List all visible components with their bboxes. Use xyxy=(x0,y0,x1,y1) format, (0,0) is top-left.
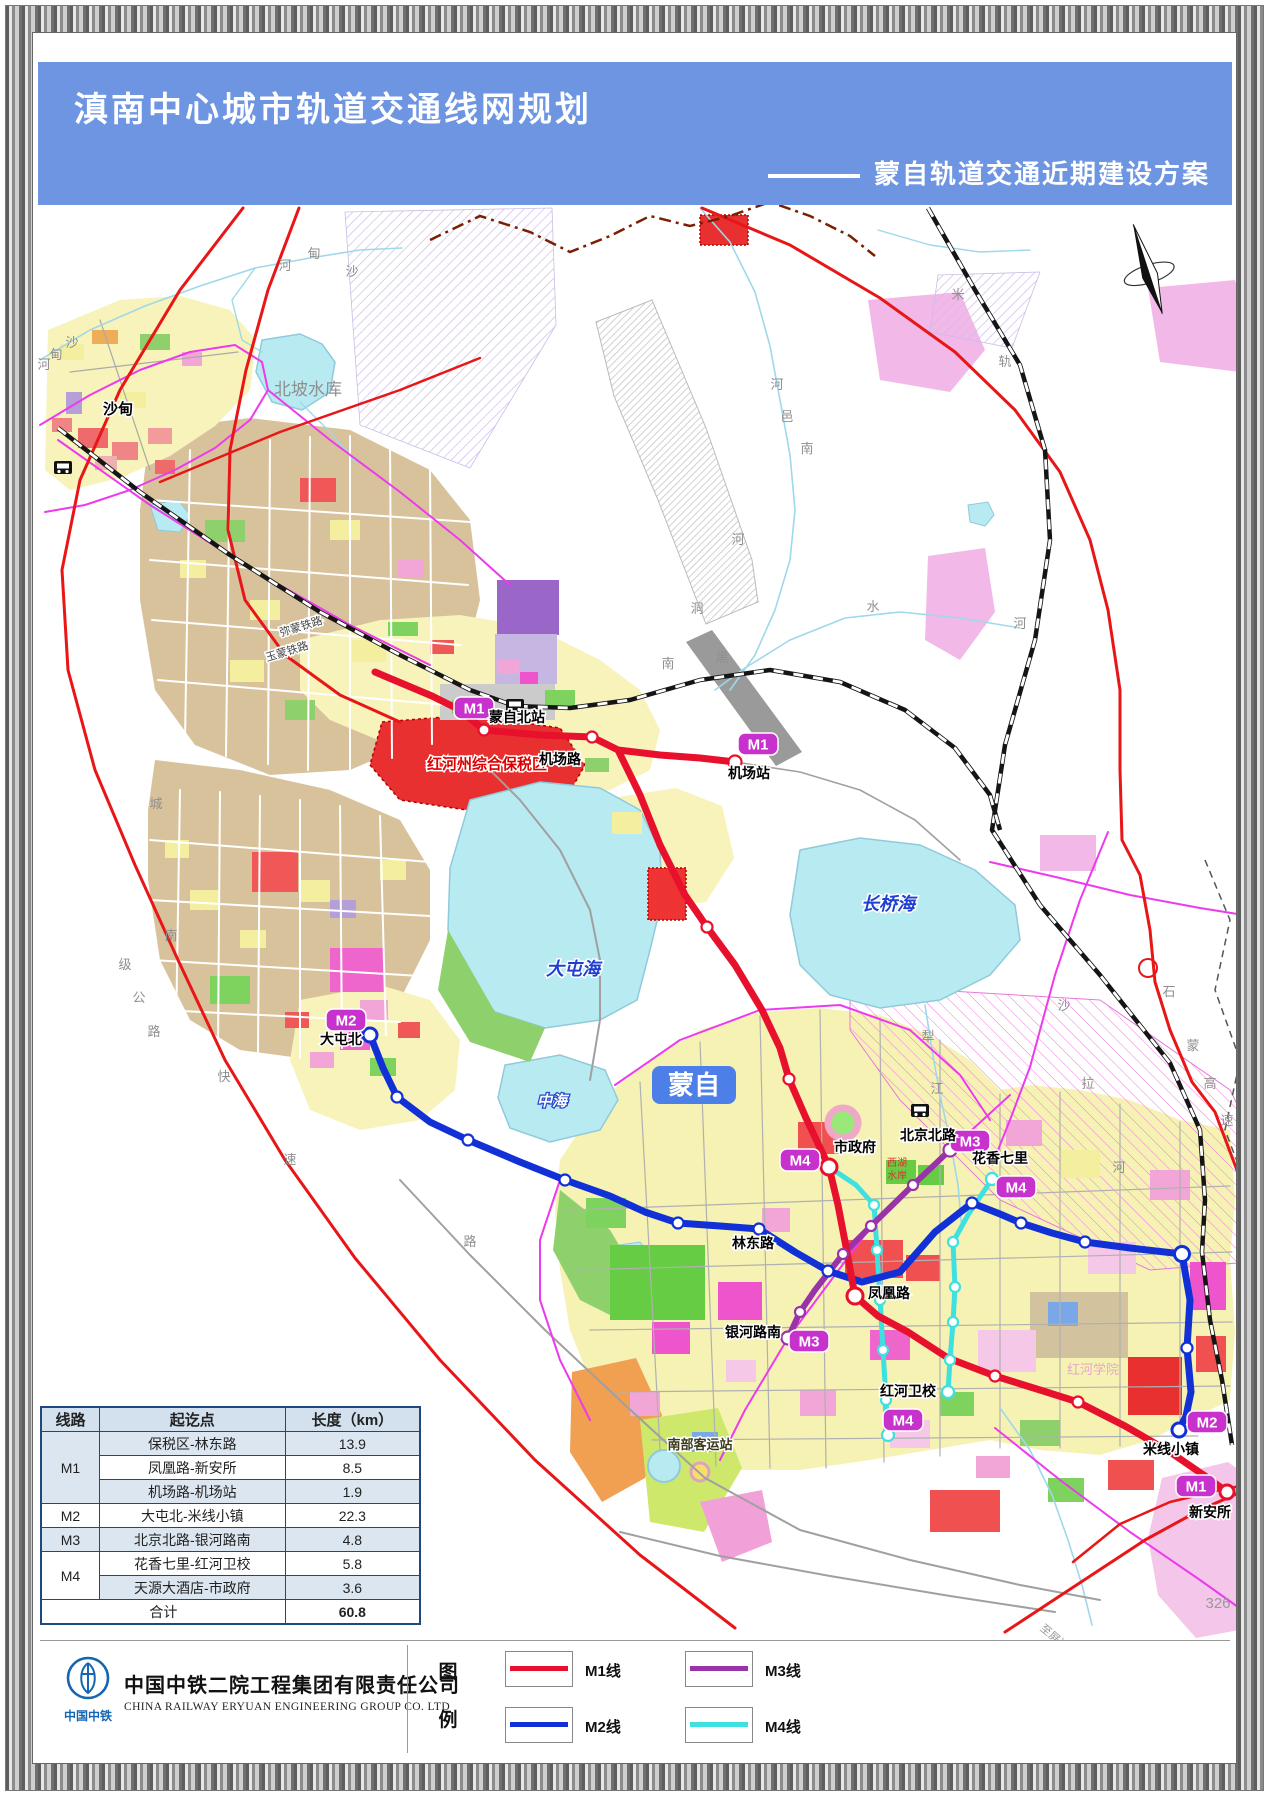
map-label: 黑 xyxy=(715,650,728,665)
map-label: 银河路南 xyxy=(725,1324,781,1340)
length-cell: 13.9 xyxy=(285,1432,420,1456)
planned-hatch-area-1 xyxy=(345,208,556,468)
legend-label-m3: M3线 xyxy=(765,1660,801,1681)
changqiaohai-lake xyxy=(790,838,1020,1008)
station-marker xyxy=(1172,1423,1186,1437)
map-label: 花香七里 xyxy=(972,1150,1028,1166)
legend-label-m2: M2线 xyxy=(585,1716,621,1737)
map-label: 蒙自北站 xyxy=(489,709,545,725)
station-marker xyxy=(1175,1247,1190,1262)
table-row: M4花香七里-红河卫校5.8 xyxy=(41,1552,420,1576)
city-name-box: 蒙自 xyxy=(652,1066,736,1104)
station-marker xyxy=(463,1135,474,1146)
station-marker xyxy=(673,1218,684,1229)
map-label: 红河卫校 xyxy=(880,1383,937,1399)
land-parcel xyxy=(520,672,538,684)
table-header: 线路 xyxy=(41,1407,99,1432)
station-marker xyxy=(587,732,598,743)
land-parcel xyxy=(205,520,245,542)
svg-text:M1: M1 xyxy=(1186,1479,1207,1496)
legend-swatch-m4 xyxy=(685,1707,753,1743)
map-label: 南部客运站 xyxy=(667,1437,732,1452)
map-label: 河 xyxy=(278,258,291,273)
title-banner: 滇南中心城市轨道交通线网规划 蒙自轨道交通近期建设方案 xyxy=(38,62,1232,205)
company-logo-caption: 中国中铁 xyxy=(60,1707,116,1724)
land-parcel xyxy=(66,392,82,414)
map-label: 河 xyxy=(1112,1160,1125,1175)
round-feature xyxy=(828,1108,858,1138)
land-parcel xyxy=(300,478,336,502)
map-label: 大屯北 xyxy=(320,1031,362,1047)
line-badge-m1: M1 xyxy=(738,733,778,755)
svg-text:M4: M4 xyxy=(893,1413,914,1430)
pond-ne xyxy=(968,502,994,526)
road-or-river xyxy=(620,1532,1055,1612)
land-parcel xyxy=(1006,1120,1042,1146)
map-label: 速 xyxy=(1220,1113,1233,1128)
segment-cell: 天源大酒店-市政府 xyxy=(99,1576,285,1600)
station-marker xyxy=(1016,1218,1027,1229)
map-label: 西湖 xyxy=(887,1157,907,1169)
station-marker xyxy=(1073,1397,1084,1408)
station-marker xyxy=(795,1307,805,1317)
map-label: 机场站 xyxy=(728,765,770,781)
station-marker xyxy=(869,1200,879,1210)
map-label: 326 xyxy=(1205,1595,1230,1612)
svg-text:M1: M1 xyxy=(464,701,485,718)
svg-text:M4: M4 xyxy=(790,1153,811,1170)
line-badge-m4: M4 xyxy=(996,1176,1036,1198)
land-parcel xyxy=(585,758,609,772)
pink-area-3 xyxy=(925,548,995,660)
road-or-river xyxy=(878,230,1030,252)
map-label: 水 xyxy=(866,599,879,614)
table-header: 起讫点 xyxy=(99,1407,285,1432)
table-row: M3北京北路-银河路南4.8 xyxy=(41,1528,420,1552)
station-marker xyxy=(560,1175,571,1186)
station-marker xyxy=(872,1245,882,1255)
line-id-cell: M1 xyxy=(41,1432,99,1504)
map-label: 红河学院 xyxy=(1067,1362,1119,1377)
map-label: 机场路 xyxy=(539,751,582,767)
land-parcel xyxy=(652,1322,690,1354)
page: M1M1M1M2M2M3M3M4M4M4沙甸北坡水库沙甸河沙甸河弥蒙铁路玉蒙铁路… xyxy=(0,0,1269,1796)
map-label: 南 xyxy=(164,928,177,943)
map-label: 林东路 xyxy=(732,1235,775,1251)
land-parcel xyxy=(497,660,519,674)
land-parcel xyxy=(762,1208,790,1232)
land-parcel xyxy=(240,930,266,948)
land-parcel xyxy=(545,690,575,706)
line-badge-m2: M2 xyxy=(1187,1411,1227,1433)
leisure-pink xyxy=(700,1490,772,1562)
map-label: 犁 xyxy=(921,1029,934,1044)
land-parcel xyxy=(230,660,264,682)
segment-cell: 凤凰路-新安所 xyxy=(99,1456,285,1480)
map-label: 南 xyxy=(800,441,813,456)
station-marker xyxy=(948,1237,958,1247)
land-parcel xyxy=(930,1490,1000,1532)
station-marker xyxy=(847,1288,863,1304)
land-parcel xyxy=(497,580,559,635)
line-badge-m1: M1 xyxy=(454,697,494,719)
legend-caption-top: 图 xyxy=(436,1657,460,1684)
station-marker xyxy=(838,1249,848,1259)
bus-station-icon xyxy=(911,1104,929,1117)
land-parcel xyxy=(870,1330,910,1360)
line-badge-m4: M4 xyxy=(780,1149,820,1171)
map-label: 洞 xyxy=(690,601,703,616)
map-label: 速 xyxy=(283,1152,296,1167)
line-id-cell: M4 xyxy=(41,1552,99,1600)
subtitle-dash xyxy=(768,174,860,178)
map-label: 路 xyxy=(147,1024,160,1039)
station-marker xyxy=(784,1074,795,1085)
segment-cell: 大屯北-米线小镇 xyxy=(99,1504,285,1528)
page-title: 滇南中心城市轨道交通线网规划 xyxy=(74,82,592,131)
land-parcel xyxy=(610,1245,705,1320)
map-label: 沙 xyxy=(1057,998,1070,1013)
map-label: 长桥海 xyxy=(861,894,918,914)
station-marker xyxy=(702,922,713,933)
station-marker xyxy=(823,1266,834,1277)
length-cell: 1.9 xyxy=(285,1480,420,1504)
land-parcel xyxy=(1020,1420,1060,1446)
train-station-icon xyxy=(54,461,72,474)
land-parcel xyxy=(398,560,424,578)
land-parcel xyxy=(612,812,642,834)
svg-text:M2: M2 xyxy=(1197,1415,1218,1432)
station-marker xyxy=(967,1198,978,1209)
map-label: 城 xyxy=(149,796,162,811)
land-parcel xyxy=(330,520,360,540)
map-label: 高 xyxy=(1203,1076,1216,1091)
length-cell: 8.5 xyxy=(285,1456,420,1480)
svg-text:M3: M3 xyxy=(960,1134,981,1151)
city-box-label: 蒙自 xyxy=(668,1070,720,1100)
station-marker xyxy=(945,1355,955,1365)
map-label: 沙甸 xyxy=(103,400,133,418)
map-label: 中海 xyxy=(537,1093,570,1110)
map-label: 河 xyxy=(1013,616,1026,631)
station-marker xyxy=(866,1221,876,1231)
land-parcel xyxy=(285,700,315,720)
land-parcel xyxy=(800,1390,836,1416)
table-header: 长度（km） xyxy=(285,1407,420,1432)
length-cell: 5.8 xyxy=(285,1552,420,1576)
map-label: 南 xyxy=(661,656,674,671)
land-parcel xyxy=(1048,1302,1078,1326)
map-label: 河 xyxy=(37,357,50,372)
map-label: 拉 xyxy=(1081,1076,1094,1091)
segment-cell: 北京北路-银河路南 xyxy=(99,1528,285,1552)
map-label: 甸 xyxy=(307,246,320,261)
ne-pink-area-2 xyxy=(1148,280,1250,372)
map-label: 北京北路 xyxy=(900,1127,957,1143)
land-parcel xyxy=(398,1022,420,1038)
segment-cell: 保税区-林东路 xyxy=(99,1432,285,1456)
map-label: 米线小镇 xyxy=(1143,1441,1199,1457)
length-cell: 22.3 xyxy=(285,1504,420,1528)
map-label: 北坡水库 xyxy=(274,380,342,399)
page-subtitle: 蒙自轨道交通近期建设方案 xyxy=(768,154,1210,191)
station-marker xyxy=(392,1092,403,1103)
station-marker xyxy=(1182,1343,1193,1354)
map-label: 河 xyxy=(731,532,744,547)
station-marker xyxy=(1080,1237,1091,1248)
map-label: 沙 xyxy=(65,335,78,350)
map-label: 甸 xyxy=(49,347,62,362)
line-badge-m4: M4 xyxy=(883,1409,923,1431)
map-label: 大屯海 xyxy=(546,959,603,979)
line-badge-m2: M2 xyxy=(326,1009,366,1031)
land-parcel xyxy=(726,1360,756,1382)
land-parcel xyxy=(388,622,418,636)
line-badge-m3: M3 xyxy=(950,1130,990,1152)
map-label: 凤凰路 xyxy=(868,1285,911,1301)
legend-swatch-m3 xyxy=(685,1651,753,1687)
segment-cell: 机场路-机场站 xyxy=(99,1480,285,1504)
station-marker xyxy=(990,1371,1001,1382)
footer-divider xyxy=(407,1645,408,1753)
land-parcel xyxy=(300,880,330,902)
station-marker xyxy=(363,1028,377,1042)
svg-text:M4: M4 xyxy=(1006,1180,1027,1197)
land-parcel xyxy=(718,1282,762,1320)
map-label: 米 xyxy=(951,287,964,302)
land-parcel xyxy=(330,948,384,992)
land-parcel xyxy=(250,600,280,620)
land-parcel xyxy=(148,428,172,444)
land-parcel xyxy=(1150,1170,1190,1200)
station-marker xyxy=(1220,1485,1234,1499)
legend-caption-bottom: 例 xyxy=(436,1705,460,1732)
map-label: 邑 xyxy=(780,409,793,424)
round-feature xyxy=(648,1450,680,1482)
map-label: 石 xyxy=(1162,984,1175,999)
land-parcel xyxy=(978,1330,1036,1372)
station-marker xyxy=(942,1386,954,1398)
line-badge-m3: M3 xyxy=(789,1330,829,1352)
station-marker xyxy=(754,1224,765,1235)
line-summary-table: 线路起讫点长度（km）M1保税区-林东路13.9凤凰路-新安所8.5机场路-机场… xyxy=(40,1406,421,1625)
station-marker xyxy=(948,1317,958,1327)
map-label: 路 xyxy=(463,1234,476,1249)
land-parcel xyxy=(882,328,926,358)
table-total-row: 合计60.8 xyxy=(41,1600,420,1625)
company-logo: 中国中铁 xyxy=(60,1655,116,1724)
station-marker xyxy=(950,1282,960,1292)
land-parcel xyxy=(700,215,748,245)
map-label: 轨 xyxy=(998,354,1011,369)
line-badge-m1: M1 xyxy=(1176,1475,1216,1497)
land-parcel xyxy=(310,1052,334,1068)
station-marker xyxy=(479,725,490,736)
land-parcel xyxy=(92,330,118,344)
legend-swatch-m2 xyxy=(505,1707,573,1743)
length-cell: 3.6 xyxy=(285,1576,420,1600)
line-id-cell: M3 xyxy=(41,1528,99,1552)
map-label: 快 xyxy=(217,1069,230,1084)
map-label: 级 xyxy=(118,957,131,972)
svg-text:M2: M2 xyxy=(336,1013,357,1030)
land-parcel xyxy=(1108,1460,1154,1490)
line-table: 线路起讫点长度（km）M1保税区-林东路13.9凤凰路-新安所8.5机场路-机场… xyxy=(40,1406,421,1625)
land-parcel xyxy=(1030,1292,1128,1358)
line-id-cell: M2 xyxy=(41,1504,99,1528)
land-parcel xyxy=(1060,1150,1100,1178)
map-label: 江 xyxy=(930,1081,943,1096)
station-marker xyxy=(908,1180,918,1190)
map-label: 新安所 xyxy=(1189,1504,1231,1520)
legend-label-m1: M1线 xyxy=(585,1660,621,1681)
station-marker xyxy=(878,1345,888,1355)
svg-text:M3: M3 xyxy=(799,1334,820,1351)
land-parcel xyxy=(648,868,686,920)
legend-label-m4: M4线 xyxy=(765,1716,801,1737)
segment-cell: 花香七里-红河卫校 xyxy=(99,1552,285,1576)
map-label: 沙 xyxy=(345,264,358,279)
table-row: M2大屯北-米线小镇22.3 xyxy=(41,1504,420,1528)
legend-swatch-m1 xyxy=(505,1651,573,1687)
airport-grounds xyxy=(596,300,758,624)
land-parcel xyxy=(330,900,356,918)
page-subtitle-text: 蒙自轨道交通近期建设方案 xyxy=(874,159,1210,189)
company-name-cn: 中国中铁二院工程集团有限责任公司 xyxy=(124,1669,460,1698)
map-label: 水岸 xyxy=(887,1170,907,1182)
map-label: 市政府 xyxy=(834,1139,876,1155)
map-label: 公 xyxy=(132,990,145,1005)
length-cell: 4.8 xyxy=(285,1528,420,1552)
map-label: 红河州综合保税区 xyxy=(427,755,547,773)
map-label: 蒙 xyxy=(1186,1038,1199,1053)
map-label: 河 xyxy=(770,377,783,392)
station-marker xyxy=(821,1159,837,1175)
land-parcel xyxy=(976,1456,1010,1478)
land-parcel xyxy=(285,1012,309,1028)
footer: 中国中铁 中国中铁二院工程集团有限责任公司 CHINA RAILWAY ERYU… xyxy=(40,1640,1230,1757)
land-parcel xyxy=(190,890,220,910)
land-parcel xyxy=(380,860,406,880)
company-name-en: CHINA RAILWAY ERYUAN ENGINEERING GROUP C… xyxy=(124,1701,450,1713)
land-parcel xyxy=(1040,835,1096,871)
table-row: M1保税区-林东路13.9 xyxy=(41,1432,420,1456)
crec-logo-icon xyxy=(65,1655,111,1701)
svg-text:M1: M1 xyxy=(748,737,769,754)
land-parcel xyxy=(210,976,250,1004)
